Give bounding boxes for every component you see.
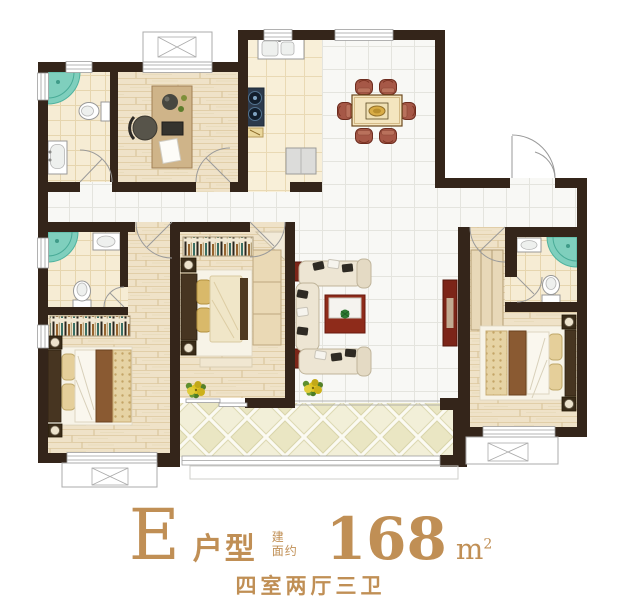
bed [48, 350, 131, 422]
headboard [181, 274, 197, 340]
lamp-icon [565, 318, 574, 327]
bed [181, 274, 248, 342]
window [143, 62, 212, 73]
floor-hallway [48, 192, 435, 222]
desk [152, 86, 192, 168]
unit-type-label: 户型 [193, 535, 257, 565]
fridge-icon [286, 148, 316, 174]
title-row: E 户型 建 面约 168 m2 [129, 504, 493, 567]
floor-plan-page: E 户型 建 面约 168 m2 四室两厅三卫 [0, 0, 621, 608]
window [38, 73, 49, 100]
floor-balcony [180, 403, 455, 457]
entry-door [512, 135, 555, 178]
balcony-window [182, 456, 440, 465]
ac-platform [466, 437, 558, 464]
bed-bench [200, 358, 252, 367]
coffee-table [329, 298, 361, 319]
area-unit: m2 [456, 535, 492, 564]
area-approx-label: 建 面约 [272, 531, 298, 567]
window [38, 325, 49, 348]
kitchen-sink-icon [258, 38, 304, 59]
bookshelf [183, 237, 253, 256]
floor-entry [435, 188, 577, 227]
wardrobe [471, 250, 503, 330]
window [264, 30, 292, 41]
lamp-icon [51, 338, 60, 347]
toilet-icon [73, 281, 91, 308]
lamp-icon [184, 344, 193, 353]
ac-platform [62, 463, 157, 487]
headboard [48, 350, 61, 422]
wardrobe [253, 250, 281, 345]
balcony-sill [190, 466, 458, 479]
dining-table [352, 95, 402, 126]
left-bedroom [48, 316, 132, 437]
sink-icon [517, 238, 541, 252]
window [335, 30, 393, 41]
ac-platform [143, 32, 212, 62]
unit-letter: E [129, 504, 180, 567]
sink-icon [93, 233, 120, 250]
lamp-icon [184, 261, 193, 270]
window [67, 453, 157, 464]
area-value: 168 [326, 513, 447, 565]
window [66, 62, 92, 73]
layout-summary: 四室两厅三卫 [236, 570, 386, 600]
stove-icon [246, 88, 264, 126]
title-block: E 户型 建 面约 168 m2 四室两厅三卫 [0, 504, 621, 600]
window [483, 427, 555, 438]
desk-chair [130, 116, 157, 140]
headboard [565, 330, 576, 396]
floor-plan-drawing [0, 0, 621, 500]
toilet-icon [542, 276, 560, 304]
lamp-icon [51, 426, 60, 435]
toilet-icon [79, 102, 110, 121]
window [38, 238, 49, 268]
bookshelf [50, 316, 130, 336]
lamp-icon [565, 400, 574, 409]
cutting-board [247, 128, 263, 137]
sink-icon [48, 141, 67, 174]
